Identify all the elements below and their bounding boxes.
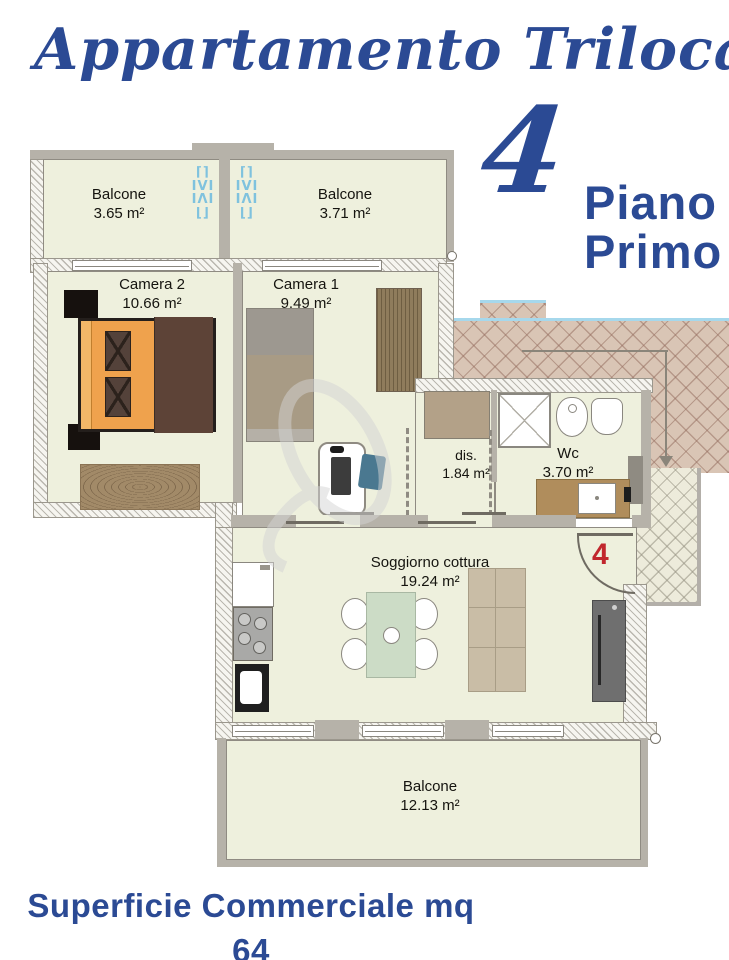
floor-plan-page: Appartamento Trilocale 4 Piano Primo ⌈⌉ … — [0, 0, 729, 960]
bed-foot — [247, 429, 313, 441]
room-name: Wc — [528, 445, 608, 464]
table-centerpiece — [383, 627, 400, 644]
balcony-divider-wall — [219, 159, 230, 259]
single-bed — [246, 308, 314, 442]
room-name: Balcone — [360, 778, 500, 797]
room-area: 3.71 m² — [284, 205, 406, 224]
room-label-balcone-ne: Balcone 3.71 m² — [284, 186, 406, 224]
wall-bedrooms-right — [438, 263, 454, 394]
room-label-balcone-s: Balcone 12.13 m² — [360, 778, 500, 816]
tv-dot — [612, 605, 617, 610]
railing-row: ⌊⌋ — [233, 207, 261, 221]
floorplan: ⌈⌉ IVI IΛI ⌊⌋ ⌈⌉ IVI IΛI ⌊⌋ — [0, 0, 729, 960]
sofa-seam — [469, 607, 525, 608]
chair-icon — [341, 598, 369, 630]
balcony-parapet-top — [30, 150, 454, 159]
wall-block — [445, 720, 489, 739]
wall-camera-divider — [233, 263, 242, 503]
bed-pillow-end — [247, 309, 313, 355]
washbasin-cabinet — [536, 479, 630, 518]
room-label-balcone-nw: Balcone 3.65 m² — [58, 186, 180, 224]
bidet-drain — [568, 404, 577, 413]
room-label-camera2: Camera 2 10.66 m² — [82, 276, 222, 314]
room-name: Soggiorno cottura — [346, 554, 514, 573]
sink-basin — [240, 671, 262, 704]
balcony-railing-icon: ⌈⌉ IVI IΛI ⌊⌋ — [233, 166, 261, 221]
toilet-icon — [591, 398, 623, 435]
room-name: Camera 1 — [242, 276, 370, 295]
double-bed — [78, 318, 216, 432]
commercial-surface: Superficie Commerciale mq 64 — [12, 884, 490, 960]
railing-row: IVI — [233, 180, 261, 194]
bidet-icon — [556, 397, 588, 437]
fridge-icon — [232, 562, 274, 607]
room-area: 12.13 m² — [360, 797, 500, 816]
bed-blanket — [154, 317, 213, 433]
pillow — [105, 377, 131, 417]
sliding-door-leaf — [418, 521, 476, 524]
wall-end-knob — [650, 733, 661, 744]
basin-drain — [595, 496, 599, 500]
room-area: 10.66 m² — [82, 295, 222, 314]
railing-row: ⌊⌋ — [189, 207, 217, 221]
railing-row: IVI — [189, 180, 217, 194]
sliding-door-leaf — [330, 512, 374, 515]
window-soggiorno — [492, 725, 564, 737]
room-name: dis. — [428, 447, 504, 465]
down-arrow-icon — [659, 456, 673, 467]
wall-end-knob — [447, 251, 457, 261]
railing-row: IΛI — [189, 193, 217, 207]
desk-chair — [358, 453, 386, 490]
wall-soggiorno-left — [215, 527, 233, 725]
wall-bedrooms-left — [33, 263, 48, 518]
footer-summary: Superficie Commerciale mq 64 n. 2 Posti … — [12, 884, 490, 960]
sofa-seam — [469, 647, 525, 648]
railing-row: ⌈⌉ — [189, 166, 217, 180]
room-area: 19.24 m² — [346, 573, 514, 592]
window-soggiorno — [232, 725, 314, 737]
dis-cabinet — [424, 391, 490, 439]
cabinet-knob — [330, 446, 344, 453]
bed-headboard — [81, 321, 92, 429]
railing-row: ⌈⌉ — [233, 166, 261, 180]
window-camera1 — [262, 260, 382, 271]
sliding-door-leaf — [286, 521, 344, 524]
kitchen-sink-icon — [235, 664, 269, 712]
window-soggiorno — [362, 725, 444, 737]
fridge-handle — [260, 565, 270, 570]
tv-icon — [598, 615, 601, 685]
terrace-path-line-h — [522, 350, 668, 352]
balcony-s-parapet-left — [217, 738, 226, 866]
room-area: 3.65 m² — [58, 205, 180, 224]
room-label-camera1: Camera 1 9.49 m² — [242, 276, 370, 314]
sliding-door-leaf — [462, 512, 506, 515]
room-label-soggiorno: Soggiorno cottura 19.24 m² — [346, 554, 514, 592]
shower-icon — [498, 393, 551, 448]
terrace-path-line-v — [665, 350, 667, 458]
window-camera2 — [72, 260, 192, 271]
room-area: 1.84 m² — [428, 465, 504, 483]
tv-unit — [592, 600, 626, 702]
railing-row: IΛI — [233, 193, 261, 207]
room-label-dis: dis. 1.84 m² — [428, 447, 504, 482]
wall-soggiorno-right — [623, 584, 647, 726]
balcony-railing-icon: ⌈⌉ IVI IΛI ⌊⌋ — [189, 166, 217, 221]
room-area: 9.49 m² — [242, 295, 370, 314]
wardrobe — [376, 288, 422, 392]
cabinet-front — [331, 457, 351, 495]
pillow — [105, 331, 131, 371]
room-area: 3.70 m² — [528, 464, 608, 483]
entrance-unit-number: 4 — [592, 538, 609, 572]
room-name: Balcone — [58, 186, 180, 205]
chair-icon — [341, 638, 369, 670]
room-name: Balcone — [284, 186, 406, 205]
wall-block — [315, 720, 359, 739]
rug — [80, 464, 200, 510]
dining-table — [366, 592, 416, 678]
room-name: Camera 2 — [82, 276, 222, 295]
room-label-wc: Wc 3.70 m² — [528, 445, 608, 483]
washbasin-icon — [578, 483, 616, 514]
door-opening-dashed — [406, 428, 412, 516]
tap-icon — [624, 487, 631, 502]
stove-icon — [233, 607, 273, 661]
